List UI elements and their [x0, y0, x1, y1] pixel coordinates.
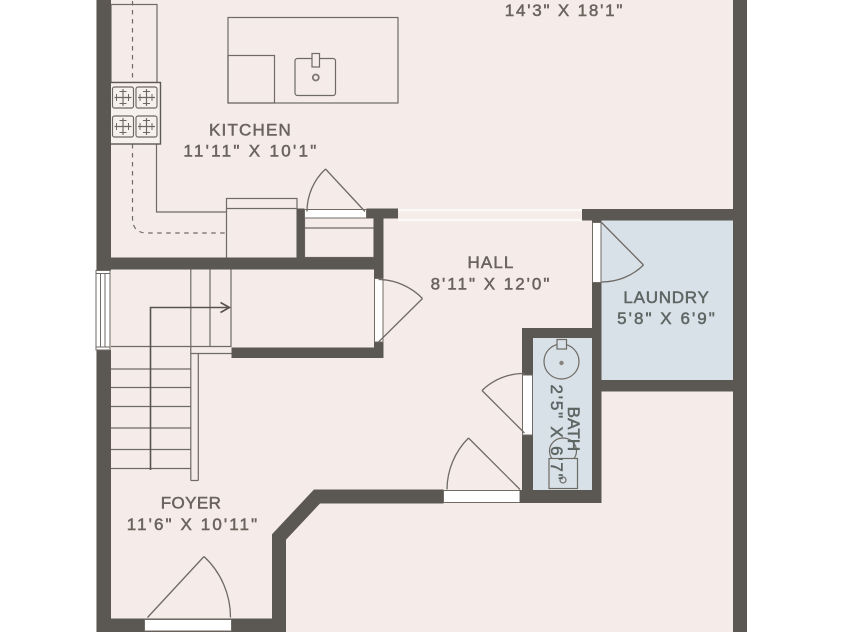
- svg-text:HALL: HALL: [468, 253, 515, 272]
- svg-text:11'6" X 10'11": 11'6" X 10'11": [127, 515, 259, 534]
- svg-text:11'11" X 10'1": 11'11" X 10'1": [183, 142, 318, 161]
- svg-text:KITCHEN: KITCHEN: [209, 121, 292, 140]
- svg-text:14'3" X 18'1": 14'3" X 18'1": [505, 1, 624, 20]
- svg-text:FOYER: FOYER: [161, 494, 222, 513]
- svg-text:2'5" X 6'7": 2'5" X 6'7": [547, 385, 566, 482]
- svg-text:8'11" X 12'0": 8'11" X 12'0": [431, 275, 552, 294]
- svg-text:5'8" X 6'9": 5'8" X 6'9": [617, 309, 717, 328]
- svg-text:LAUNDRY: LAUNDRY: [623, 288, 709, 307]
